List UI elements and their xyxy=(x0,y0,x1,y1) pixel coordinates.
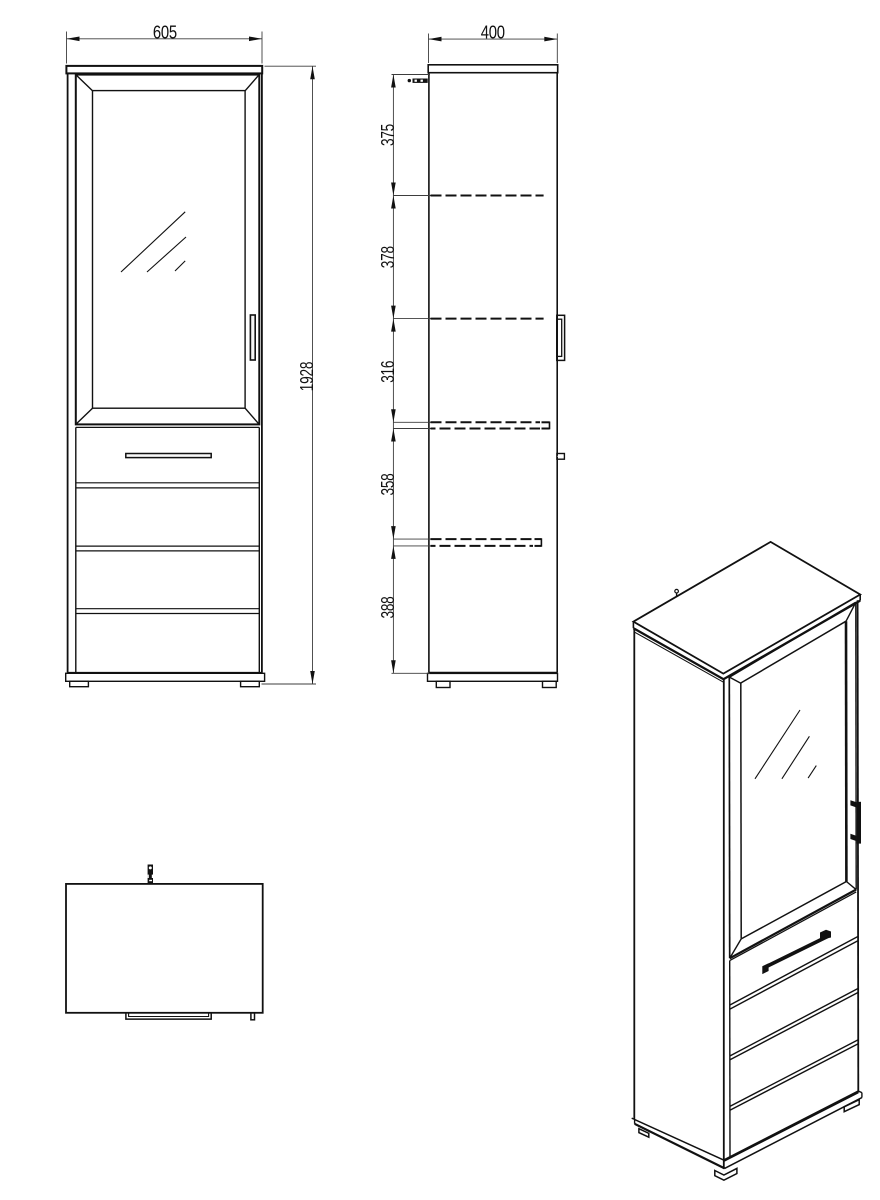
svg-text:605: 605 xyxy=(153,22,177,42)
svg-text:378: 378 xyxy=(378,246,398,268)
svg-text:316: 316 xyxy=(378,361,398,383)
svg-text:358: 358 xyxy=(378,473,398,495)
svg-text:388: 388 xyxy=(378,596,398,618)
svg-text:375: 375 xyxy=(378,124,398,146)
svg-text:1928: 1928 xyxy=(297,362,317,392)
svg-text:400: 400 xyxy=(481,22,505,42)
